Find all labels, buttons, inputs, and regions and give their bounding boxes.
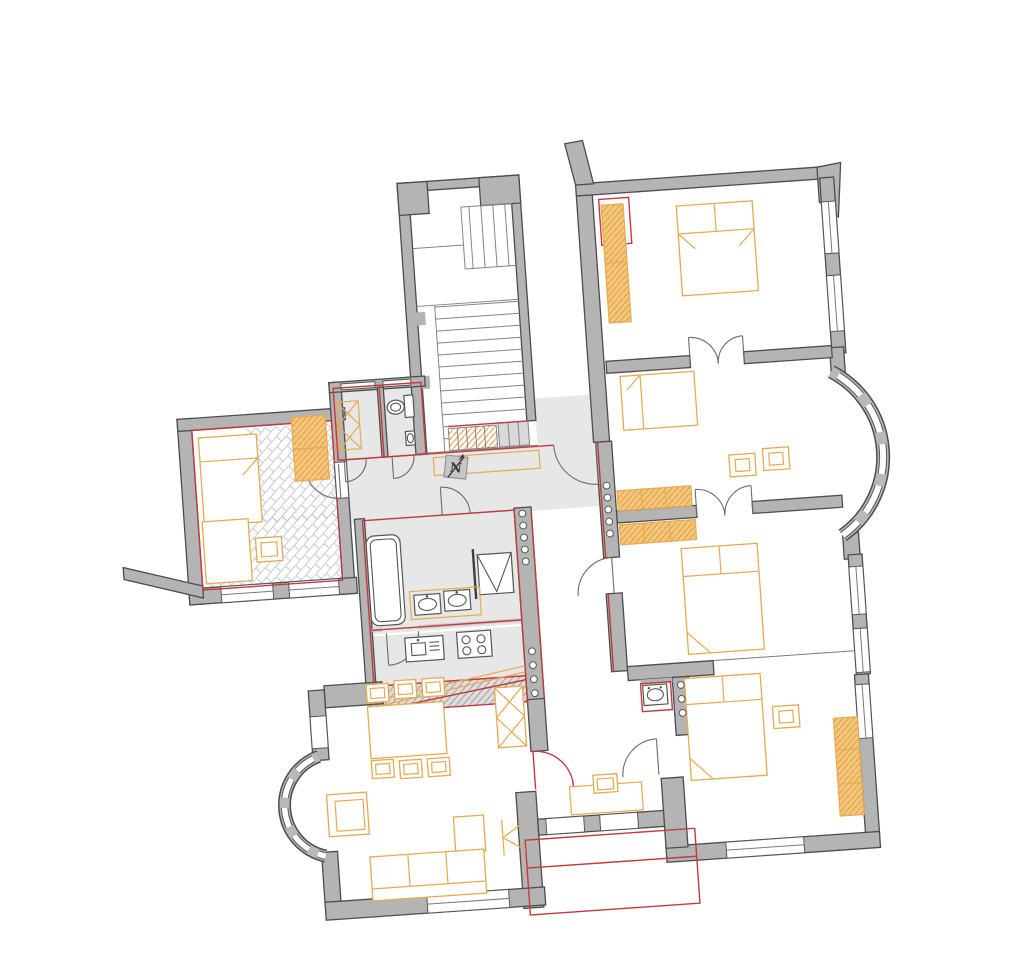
armchair (327, 792, 370, 837)
kitchen-sink (405, 635, 445, 662)
floor-plan-canvas: N (0, 0, 1030, 963)
bay-window-left (281, 756, 326, 858)
dining-set (366, 677, 451, 780)
desk-bottom-center (569, 772, 643, 815)
x-cabinet-living (494, 686, 526, 748)
side-tables-bedroom2 (728, 447, 790, 477)
staircase (397, 175, 538, 455)
wc-basin (405, 431, 415, 446)
floor-plan-page: N (0, 0, 1030, 963)
double-bed-bedroom1 (676, 201, 758, 296)
stair-exit-flight (448, 421, 529, 451)
single-bed-bedroom2 (620, 371, 698, 430)
side-table-bedroom4 (772, 705, 799, 729)
north-label: N (449, 460, 463, 476)
double-bed-bedroom3 (681, 543, 764, 654)
sofa (368, 815, 489, 901)
bed-left-room (198, 434, 262, 526)
closet-basin (643, 684, 668, 706)
stove (456, 630, 492, 658)
double-bed-bedroom4 (684, 673, 767, 780)
bathtub (366, 534, 406, 626)
bay-window-right (831, 368, 888, 535)
